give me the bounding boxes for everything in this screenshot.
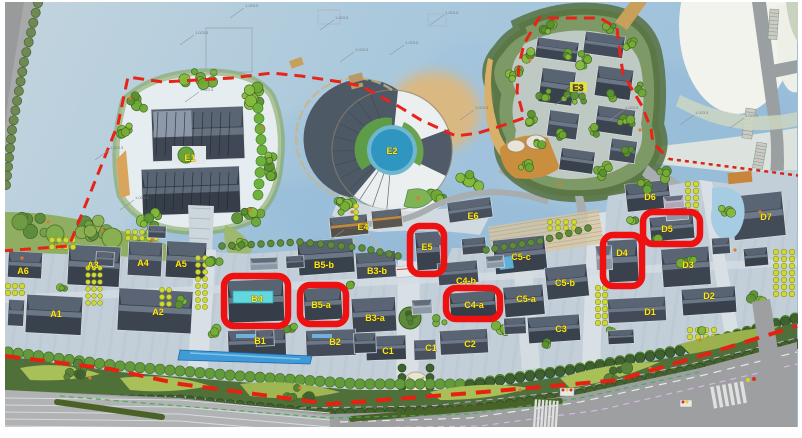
svg-text:B3-a: B3-a [365, 313, 386, 323]
svg-text:D7: D7 [760, 212, 772, 222]
svg-text:D5: D5 [661, 224, 673, 234]
svg-text:C4-a: C4-a [464, 300, 485, 310]
svg-text:B3-b: B3-b [367, 266, 388, 276]
svg-text:A3: A3 [87, 260, 99, 270]
svg-text:1.023.5: 1.023.5 [135, 195, 149, 200]
svg-text:D3: D3 [682, 260, 694, 270]
svg-text:C1: C1 [425, 343, 437, 353]
svg-text:1.023.5: 1.023.5 [570, 90, 584, 95]
svg-text:A2: A2 [152, 307, 164, 317]
svg-text:1.023.5: 1.023.5 [195, 30, 209, 35]
svg-text:1.023.5: 1.023.5 [695, 110, 709, 115]
svg-text:1.023.5: 1.023.5 [245, 3, 259, 8]
svg-text:D2: D2 [703, 291, 715, 301]
svg-text:1.023.5: 1.023.5 [625, 105, 639, 110]
svg-text:E1: E1 [184, 153, 195, 163]
svg-text:C5-a: C5-a [516, 294, 537, 304]
svg-text:E4: E4 [357, 222, 368, 232]
svg-text:E6: E6 [467, 211, 478, 221]
svg-text:C2: C2 [464, 339, 476, 349]
svg-text:D1: D1 [644, 307, 656, 317]
svg-text:1.023.5: 1.023.5 [745, 113, 759, 118]
svg-text:D4: D4 [616, 248, 628, 258]
svg-text:C4-b: C4-b [456, 276, 477, 286]
svg-text:C3: C3 [555, 324, 567, 334]
svg-text:A6: A6 [17, 266, 29, 276]
svg-text:1.023.5: 1.023.5 [335, 15, 349, 20]
svg-text:B1: B1 [254, 336, 266, 346]
svg-text:D6: D6 [644, 192, 656, 202]
svg-text:A5: A5 [175, 259, 187, 269]
svg-text:C5-b: C5-b [555, 278, 576, 288]
svg-text:B5-a: B5-a [311, 300, 332, 310]
svg-text:1.023.5: 1.023.5 [345, 225, 359, 230]
svg-text:1.023.5: 1.023.5 [405, 40, 419, 45]
svg-text:C5-c: C5-c [511, 252, 531, 262]
svg-text:1.023.5: 1.023.5 [110, 145, 124, 150]
svg-text:1.023.5: 1.023.5 [445, 10, 459, 15]
svg-text:B4: B4 [251, 294, 263, 304]
svg-text:A1: A1 [50, 309, 62, 319]
svg-text:A4: A4 [137, 258, 149, 268]
svg-text:B2: B2 [329, 337, 341, 347]
svg-text:1.023.5: 1.023.5 [200, 87, 214, 92]
svg-text:E2: E2 [386, 146, 397, 156]
svg-text:C1: C1 [382, 346, 394, 356]
svg-text:B5-b: B5-b [314, 260, 335, 270]
svg-text:1.023.5: 1.023.5 [355, 47, 369, 52]
svg-text:1.023.5: 1.023.5 [475, 105, 489, 110]
svg-text:E5: E5 [421, 242, 432, 252]
